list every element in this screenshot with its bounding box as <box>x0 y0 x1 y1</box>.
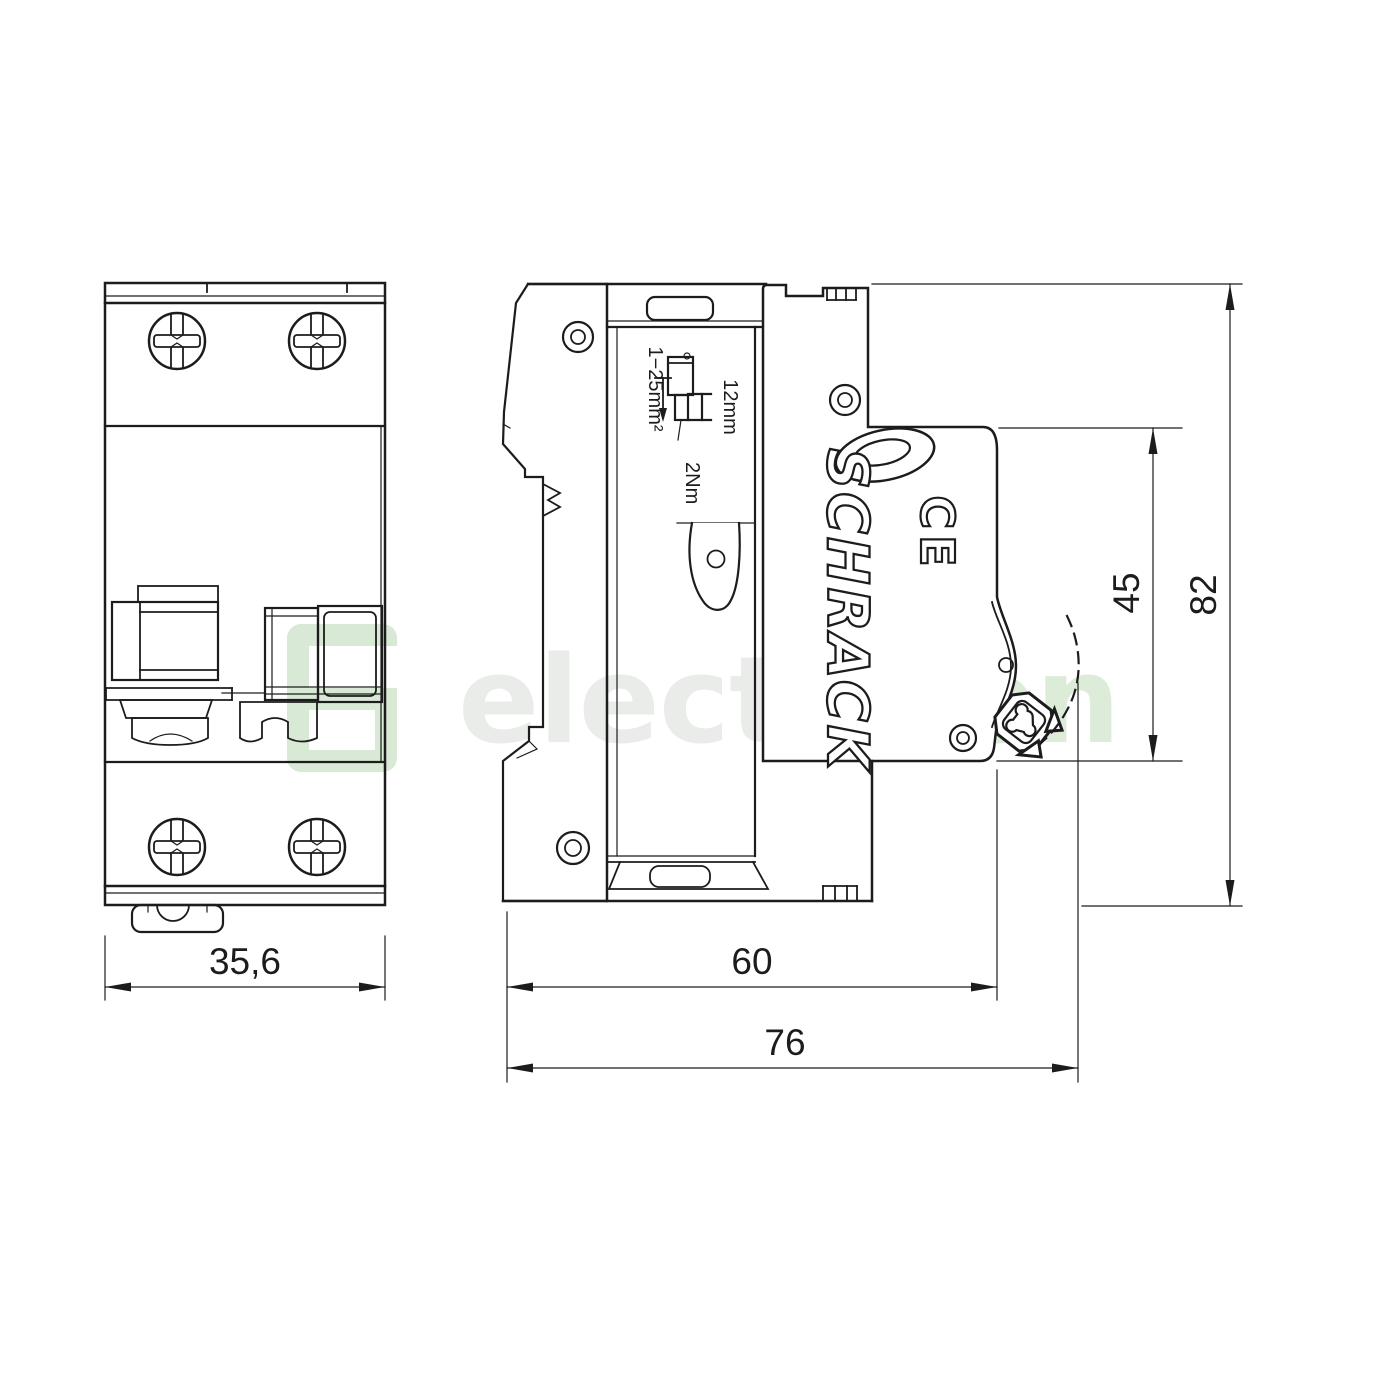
screw-head-icon <box>149 313 345 875</box>
dim-handle-height-value: 45 <box>1106 572 1147 613</box>
mounting-ear <box>677 523 755 610</box>
side-view: SCHRACK CE 1−25mm² 12mm <box>503 284 1079 901</box>
dim-body-depth-value: 60 <box>731 941 772 982</box>
din-clip-front <box>132 905 223 932</box>
torque-label: 2Nm <box>681 462 703 504</box>
dim-front-width-value: 35,6 <box>209 941 281 982</box>
ce-mark: CE <box>910 495 964 572</box>
technical-drawing-canvas: electricon <box>0 0 1400 1400</box>
breaker-housing: SCHRACK CE <box>763 285 1079 901</box>
dim-total-height-value: 82 <box>1183 574 1224 615</box>
dimension-front-width: 35,6 <box>105 936 385 1000</box>
strip-length-label: 12mm <box>719 379 741 435</box>
din-mounting-plate <box>503 284 605 901</box>
dim-total-depth-value: 76 <box>764 1022 805 1063</box>
dimensional-drawing: electricon <box>0 0 1400 1400</box>
front-view <box>105 283 385 932</box>
dimension-body-depth: 60 <box>507 770 997 1082</box>
bottom-comb-icon <box>823 886 857 901</box>
rivet-icon <box>557 322 593 864</box>
schrack-logo-text: SCHRACK <box>814 448 880 773</box>
terminal-annotation: 1−25mm² 12mm 2Nm <box>644 346 741 504</box>
